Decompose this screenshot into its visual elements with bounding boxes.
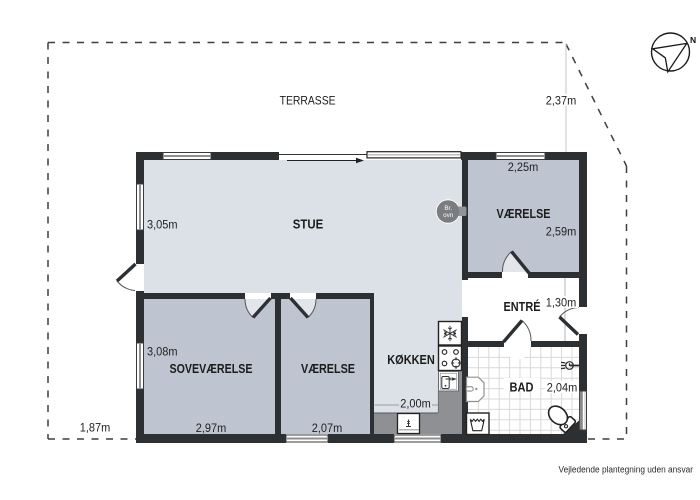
svg-text:ovn: ovn xyxy=(443,212,454,219)
svg-text:2,00m: 2,00m xyxy=(400,399,431,411)
svg-text:3,05m: 3,05m xyxy=(147,220,178,232)
svg-text:BAD: BAD xyxy=(510,380,534,395)
svg-text:ENTRÉ: ENTRÉ xyxy=(504,299,541,314)
svg-text:VÆRELSE: VÆRELSE xyxy=(497,206,551,221)
svg-text:KØKKEN: KØKKEN xyxy=(387,352,435,367)
svg-text:1,87m: 1,87m xyxy=(80,423,111,435)
svg-text:2,59m: 2,59m xyxy=(546,227,577,239)
svg-text:SOVEVÆRELSE: SOVEVÆRELSE xyxy=(170,361,253,376)
svg-text:2,37m: 2,37m xyxy=(546,96,577,108)
svg-text:VÆRELSE: VÆRELSE xyxy=(301,361,355,376)
svg-text:TERRASSE: TERRASSE xyxy=(280,94,336,108)
svg-text:Vejledende plantegning uden an: Vejledende plantegning uden ansvar xyxy=(559,465,694,475)
svg-text:2,04m: 2,04m xyxy=(547,383,578,395)
svg-text:STUE: STUE xyxy=(293,217,324,232)
svg-text:3,08m: 3,08m xyxy=(147,347,178,359)
svg-text:Br.: Br. xyxy=(444,205,452,212)
svg-text:2,07m: 2,07m xyxy=(312,423,343,435)
svg-text:1,30m: 1,30m xyxy=(546,298,577,310)
svg-text:N: N xyxy=(690,35,696,45)
svg-text:2,97m: 2,97m xyxy=(196,423,227,435)
svg-text:2,25m: 2,25m xyxy=(508,162,539,174)
